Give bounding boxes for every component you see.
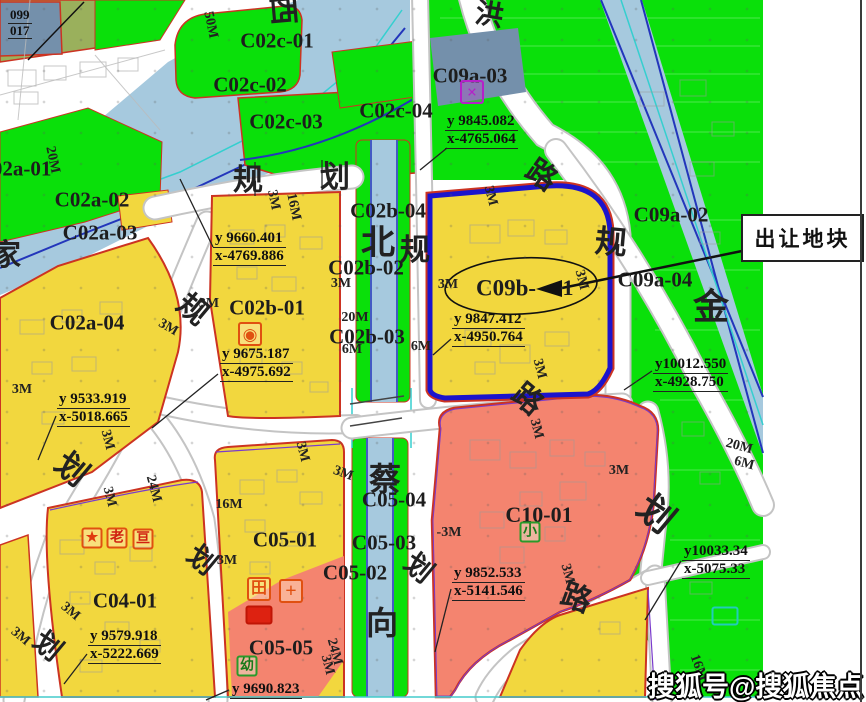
coordinate-label-3: y 9847.412x-4950.764 <box>452 311 525 347</box>
watermark: 搜狐号@搜狐焦点宣城站 <box>648 665 866 702</box>
lao-icon: 老 <box>107 528 128 549</box>
map-label-划-28: 划 <box>320 163 350 193</box>
hospital-cross-icon: + <box>279 579 303 603</box>
map-label-C05-03-17: C05-03 <box>352 533 416 554</box>
school-icon: 小 <box>520 522 541 543</box>
map-label-划-36: 划 <box>181 541 220 580</box>
coordinate-label-8: y10033.34x-5075.33 <box>682 543 750 579</box>
map-labels-layer: C02c-01C02c-02C02c-03C02c-04C09a-03C09a-… <box>0 0 866 702</box>
map-label-C05-02-18: C05-02 <box>323 563 387 584</box>
map-label-划-39: 划 <box>631 489 682 540</box>
map-label-3M-56: 3M <box>12 383 32 397</box>
map-label-3M-68: 3M <box>527 417 546 440</box>
map-label-金-32: 金 <box>693 289 729 325</box>
map-label-西-24: 西 <box>266 0 299 26</box>
map-label-C09b--22: C09b- <box>476 277 536 300</box>
coordinate-label-2: y 9675.187x-4975.692 <box>220 346 293 382</box>
map-label-3M-49: 3M <box>199 297 219 311</box>
map-label-划-37: 划 <box>27 627 66 666</box>
map-label-划-35: 划 <box>49 446 94 491</box>
map-label-3M-48: 3M <box>481 184 500 207</box>
map-label-C02a-01-7: C02a-01 <box>0 159 51 180</box>
map-label-20M-51: 20M <box>341 311 368 325</box>
map-label-C09a-02-5: C09a-02 <box>634 205 709 226</box>
map-label-向-43: 向 <box>366 607 398 639</box>
coordinate-label-10: 099017 <box>8 8 32 39</box>
map-label-3M-73: 3M <box>530 357 549 380</box>
market-icon: 田 <box>247 577 271 601</box>
coordinate-label-7: y10012.550x-4928.750 <box>653 356 728 392</box>
map-label-C02a-03-9: C02a-03 <box>63 223 138 244</box>
map-label-6M-52: 6M <box>342 343 362 357</box>
map-label-洪-25: 洪 <box>473 0 505 32</box>
coordinate-label-0: y 9845.082x-4765.064 <box>445 113 518 149</box>
map-label-路-40: 路 <box>506 379 548 421</box>
planning-map: C02c-01C02c-02C02c-03C02c-04C09a-03C09a-… <box>0 0 866 702</box>
map-label-3M-69: 3M <box>609 464 629 478</box>
map-label-规-27: 规 <box>233 166 263 196</box>
map-label-3M-72: 3M <box>572 268 591 291</box>
map-label-1-23: 1 <box>563 277 574 299</box>
coordinate-label-5: y 9579.918x-5222.669 <box>88 628 161 664</box>
callout-label: 出让地块 <box>755 223 851 253</box>
callout-box: 出让地块 <box>741 214 864 262</box>
map-label-C02c-04-3: C02c-04 <box>359 101 432 122</box>
map-label-3M-57: 3M <box>293 440 312 463</box>
map-label-路-26: 路 <box>520 155 562 197</box>
coordinate-label-9: y 9690.823 <box>230 681 302 699</box>
fire-station-icon <box>246 606 273 625</box>
map-label-C02b-01-13: C02b-01 <box>229 298 305 319</box>
map-label-3M-64: 3M <box>58 600 82 624</box>
map-label-C02c-02-1: C02c-02 <box>213 75 286 96</box>
map-label-规-30: 规 <box>400 236 430 266</box>
map-label--3M-70: -3M <box>437 526 462 540</box>
map-label-C05-05-19: C05-05 <box>249 638 313 659</box>
gen-icon: 亘 <box>133 529 154 550</box>
map-label-3M-60: 3M <box>217 554 237 568</box>
map-label-16M-59: 16M <box>215 498 242 512</box>
map-label-3M-54: 3M <box>438 278 458 292</box>
map-label-3M-71: 3M <box>558 562 577 585</box>
coordinate-label-6: y 9852.533x-5141.546 <box>452 565 525 601</box>
map-label-划-38: 划 <box>398 549 437 588</box>
map-label-3M-46: 3M <box>264 189 282 212</box>
map-label-家-33: 家 <box>0 241 21 271</box>
purple-x-icon: × <box>460 80 484 104</box>
map-label-50M-44: 50M <box>200 10 219 40</box>
map-label-北-29: 北 <box>361 227 395 261</box>
kindergarten-icon: 幼 <box>237 656 258 677</box>
map-label-C02b-04-11: C02b-04 <box>350 201 426 222</box>
map-label-6M-53: 6M <box>411 340 431 354</box>
page-border-line <box>860 0 862 702</box>
teal-box-icon <box>712 607 739 626</box>
map-label-C02a-04-10: C02a-04 <box>50 313 125 334</box>
map-label-C02c-03-2: C02c-03 <box>249 112 322 133</box>
map-label-规-31: 规 <box>594 225 629 260</box>
map-label-蔡-42: 蔡 <box>369 463 401 495</box>
map-label-C09a-04-6: C09a-04 <box>618 270 693 291</box>
map-label-6M-75: 6M <box>732 455 755 474</box>
map-label-3M-62: 3M <box>98 428 117 451</box>
map-label-C05-01-16: C05-01 <box>253 530 317 551</box>
map-label-C02a-02-8: C02a-02 <box>55 190 130 211</box>
map-label-3M-50: 3M <box>331 277 351 291</box>
map-label-C02c-01-0: C02c-01 <box>240 31 313 52</box>
map-label-3M-58: 3M <box>331 464 355 484</box>
coordinate-label-1: y 9660.401x-4769.886 <box>213 230 286 266</box>
map-label-C02b-03-14: C02b-03 <box>329 327 405 348</box>
star-icon: ★ <box>82 528 103 549</box>
map-label-3M-55: 3M <box>156 317 181 339</box>
flower-icon: ◉ <box>238 322 262 346</box>
map-label-24M-61: 24M <box>143 474 164 504</box>
coordinate-label-4: y 9533.919x-5018.665 <box>57 391 130 427</box>
map-label-16M-47: 16M <box>283 192 302 222</box>
map-label-3M-63: 3M <box>100 485 119 508</box>
map-label-C04-01-20: C04-01 <box>93 591 157 612</box>
